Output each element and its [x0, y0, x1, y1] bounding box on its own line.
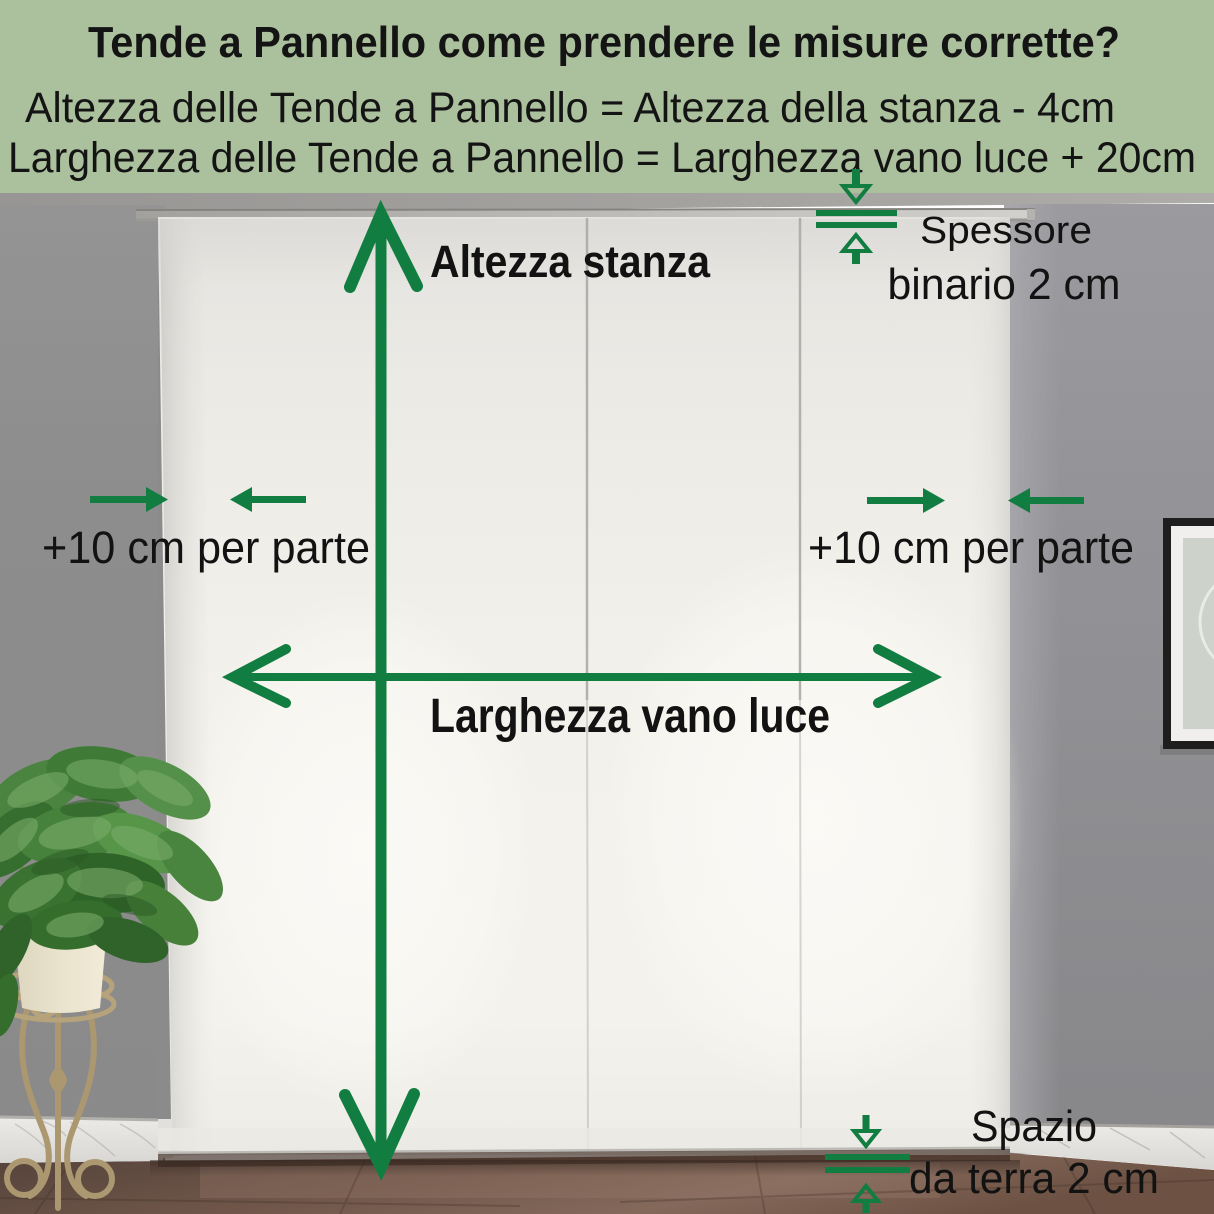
- svg-text:Larghezza vano luce: Larghezza vano luce: [430, 690, 830, 743]
- svg-text:+10 cm per parte: +10 cm per parte: [42, 522, 370, 573]
- svg-text:binario 2 cm: binario 2 cm: [888, 260, 1121, 309]
- svg-text:Altezza stanza: Altezza stanza: [430, 236, 711, 287]
- svg-text:+10 cm per parte: +10 cm per parte: [808, 522, 1134, 573]
- svg-text:Tende a Pannello come prendere: Tende a Pannello come prendere le misure…: [88, 18, 1120, 67]
- svg-text:Larghezza delle Tende a Pannel: Larghezza delle Tende a Pannello = Largh…: [8, 134, 1196, 182]
- svg-text:da terra 2 cm: da terra 2 cm: [909, 1154, 1159, 1203]
- svg-text:Spessore: Spessore: [920, 210, 1092, 252]
- svg-text:Altezza delle Tende a Pannello: Altezza delle Tende a Pannello = Altezza…: [25, 84, 1115, 132]
- svg-text:Spazio: Spazio: [971, 1102, 1097, 1151]
